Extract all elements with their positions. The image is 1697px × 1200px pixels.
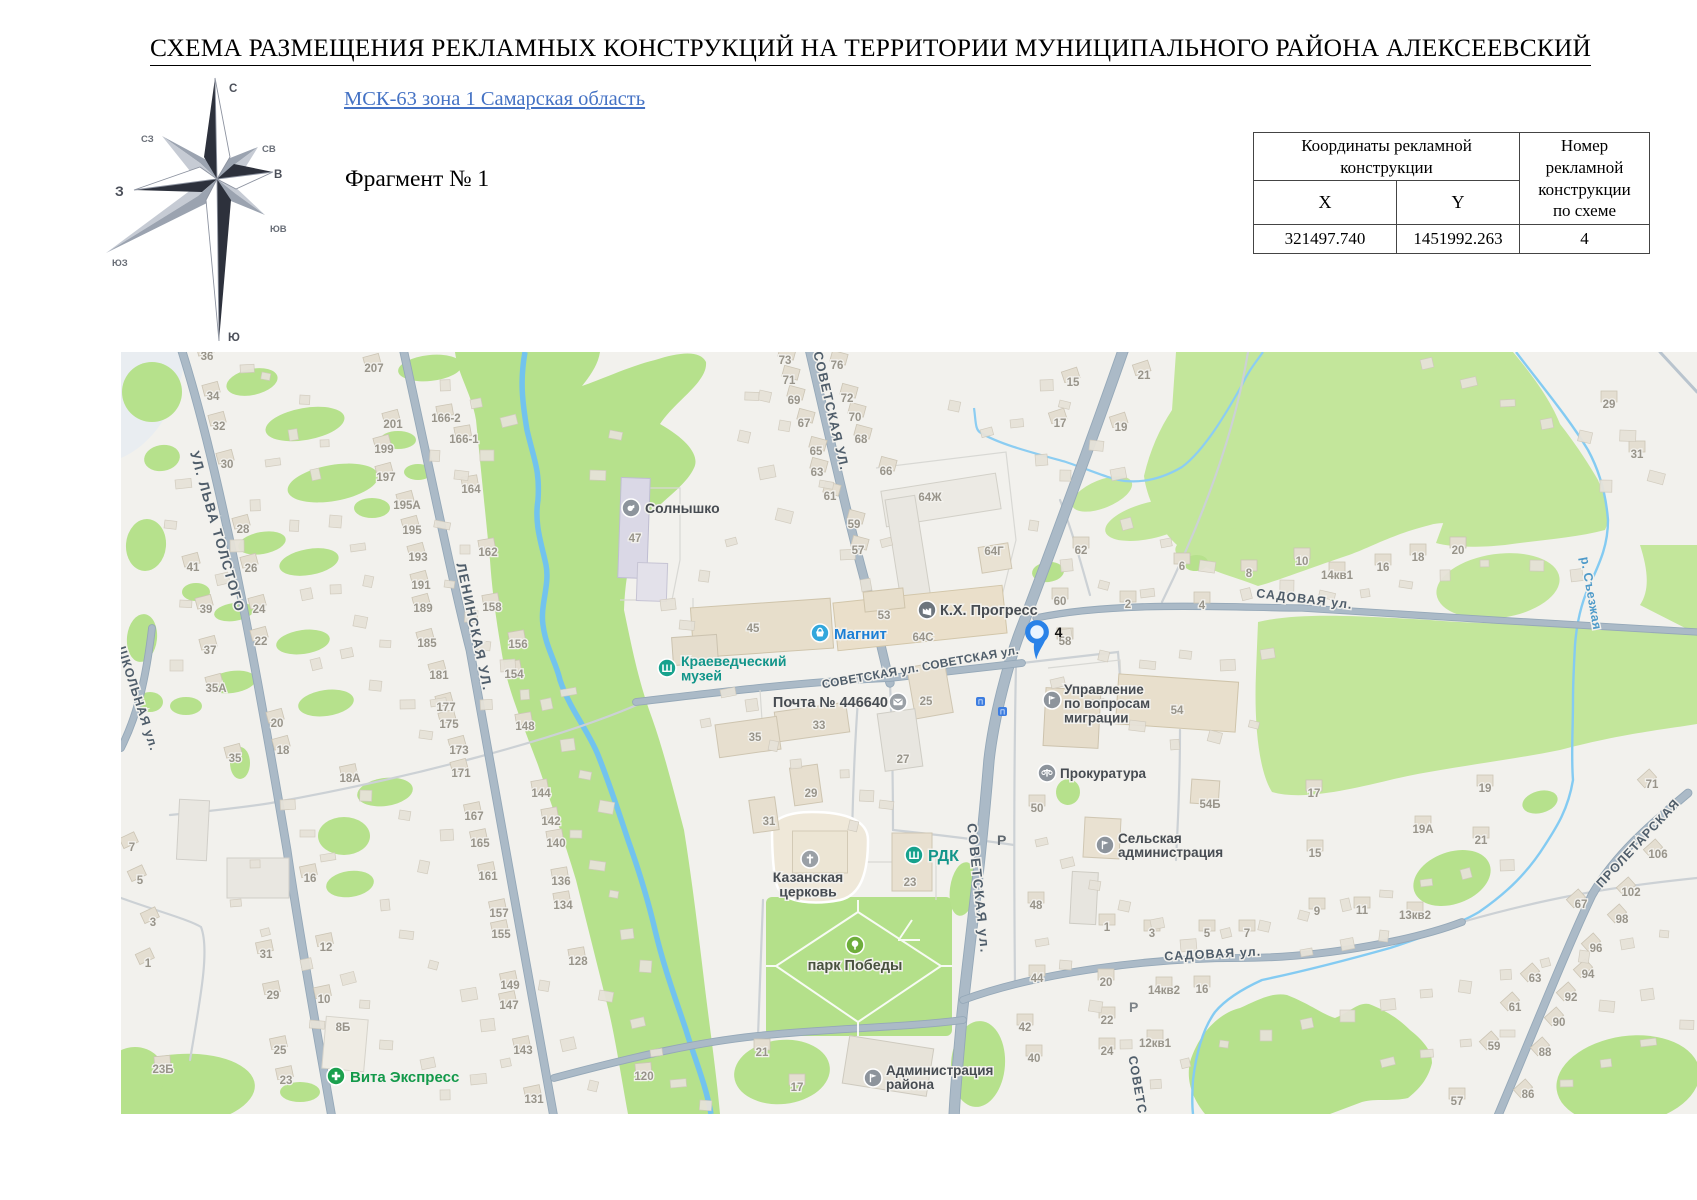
svg-text:64Ж: 64Ж	[918, 492, 942, 504]
svg-text:131: 131	[524, 1094, 544, 1106]
svg-text:57: 57	[852, 545, 865, 557]
svg-text:Администрация: Администрация	[886, 1063, 993, 1078]
svg-text:21: 21	[1475, 835, 1488, 847]
svg-text:201: 201	[383, 419, 403, 431]
svg-text:29: 29	[805, 788, 818, 800]
svg-text:миграции: миграции	[1064, 710, 1129, 725]
svg-text:157: 157	[489, 908, 508, 920]
svg-text:музей: музей	[681, 668, 722, 684]
svg-text:54Б: 54Б	[1199, 799, 1220, 811]
svg-text:86: 86	[1522, 1089, 1535, 1101]
svg-text:171: 171	[451, 768, 471, 780]
svg-text:22: 22	[255, 636, 268, 648]
svg-text:207: 207	[364, 363, 383, 375]
svg-text:18А: 18А	[339, 773, 360, 785]
svg-text:30: 30	[221, 459, 234, 471]
svg-text:98: 98	[1616, 914, 1629, 926]
svg-text:48: 48	[1030, 900, 1043, 912]
svg-text:64С: 64С	[912, 632, 933, 644]
svg-text:92: 92	[1565, 992, 1578, 1004]
svg-text:26: 26	[245, 563, 258, 575]
svg-text:162: 162	[478, 547, 497, 559]
svg-text:69: 69	[788, 395, 801, 407]
svg-text:39: 39	[200, 604, 213, 616]
svg-text:7: 7	[1244, 928, 1250, 940]
svg-text:149: 149	[500, 980, 519, 992]
svg-text:35: 35	[229, 753, 242, 765]
svg-text:17: 17	[1054, 418, 1067, 430]
svg-text:16: 16	[304, 873, 317, 885]
svg-text:29: 29	[1603, 399, 1616, 411]
svg-text:165: 165	[470, 838, 490, 850]
svg-text:94: 94	[1582, 969, 1595, 981]
svg-text:15: 15	[1067, 377, 1080, 389]
svg-text:5: 5	[1204, 928, 1211, 940]
svg-text:166-1: 166-1	[449, 434, 479, 446]
svg-text:31: 31	[763, 816, 776, 828]
svg-text:13кв2: 13кв2	[1399, 910, 1431, 922]
svg-text:17: 17	[1308, 788, 1321, 800]
svg-text:59: 59	[1488, 1041, 1501, 1053]
svg-text:61: 61	[1509, 1002, 1522, 1014]
svg-text:185: 185	[417, 638, 437, 650]
svg-text:67: 67	[798, 418, 811, 430]
svg-text:P: P	[997, 832, 1006, 848]
svg-text:147: 147	[499, 1000, 518, 1012]
svg-text:Казанская: Казанская	[773, 869, 843, 885]
svg-text:9: 9	[1314, 906, 1320, 918]
svg-text:158: 158	[482, 602, 502, 614]
svg-text:СВ: СВ	[262, 144, 276, 155]
svg-text:21: 21	[1138, 370, 1151, 382]
svg-text:140: 140	[546, 838, 565, 850]
svg-text:7: 7	[129, 842, 135, 854]
svg-text:68: 68	[855, 434, 868, 446]
svg-text:1: 1	[145, 958, 152, 970]
svg-text:14кв1: 14кв1	[1321, 570, 1354, 582]
svg-text:155: 155	[491, 929, 511, 941]
svg-text:церковь: церковь	[779, 884, 837, 900]
svg-text:20: 20	[1100, 977, 1113, 989]
svg-text:Ю: Ю	[228, 332, 240, 344]
svg-text:2: 2	[1125, 599, 1131, 611]
svg-text:47: 47	[629, 533, 642, 545]
svg-text:по вопросам: по вопросам	[1064, 696, 1150, 711]
svg-text:90: 90	[1553, 1017, 1566, 1029]
svg-text:189: 189	[413, 603, 432, 615]
svg-text:199: 199	[374, 444, 393, 456]
svg-text:45: 45	[747, 623, 760, 635]
svg-text:35: 35	[749, 732, 762, 744]
svg-text:53: 53	[878, 610, 891, 622]
svg-text:42: 42	[1019, 1022, 1032, 1034]
svg-text:36: 36	[201, 352, 214, 363]
svg-text:Краеведческий: Краеведческий	[681, 653, 787, 669]
svg-text:1: 1	[1104, 922, 1111, 934]
svg-text:24: 24	[253, 604, 266, 616]
svg-text:44: 44	[1031, 973, 1044, 985]
svg-text:59: 59	[848, 519, 861, 531]
svg-text:Управление: Управление	[1064, 682, 1144, 697]
svg-text:П: П	[1000, 710, 1005, 717]
svg-text:63: 63	[811, 467, 824, 479]
svg-text:18: 18	[277, 745, 290, 757]
svg-text:19: 19	[1115, 422, 1128, 434]
svg-text:173: 173	[449, 745, 468, 757]
svg-text:66: 66	[880, 466, 893, 478]
svg-text:73: 73	[779, 355, 792, 367]
svg-text:57: 57	[1451, 1096, 1464, 1108]
svg-text:35А: 35А	[205, 683, 226, 695]
svg-text:62: 62	[1075, 545, 1088, 557]
svg-text:25: 25	[920, 696, 933, 708]
svg-text:С: С	[229, 83, 237, 95]
svg-text:К.Х. Прогресс: К.Х. Прогресс	[940, 603, 1038, 619]
svg-text:Вита Экспресс: Вита Экспресс	[350, 1069, 459, 1086]
svg-text:8: 8	[1246, 568, 1253, 580]
svg-text:67: 67	[1575, 899, 1588, 911]
svg-text:ЮВ: ЮВ	[270, 224, 287, 235]
svg-text:148: 148	[515, 721, 535, 733]
svg-text:166-2: 166-2	[431, 413, 460, 425]
svg-text:31: 31	[1631, 449, 1644, 461]
svg-text:154: 154	[504, 669, 524, 681]
svg-text:181: 181	[429, 670, 449, 682]
svg-text:19: 19	[1479, 783, 1492, 795]
svg-text:4: 4	[1055, 624, 1063, 640]
svg-text:161: 161	[478, 871, 498, 883]
svg-text:8Б: 8Б	[336, 1022, 351, 1034]
svg-text:134: 134	[553, 900, 573, 912]
svg-text:191: 191	[411, 580, 431, 592]
svg-text:P: P	[1129, 999, 1138, 1015]
svg-text:144: 144	[531, 788, 551, 800]
svg-text:21: 21	[756, 1047, 769, 1059]
svg-text:27: 27	[897, 754, 910, 766]
svg-text:23: 23	[904, 877, 917, 889]
svg-text:96: 96	[1590, 943, 1603, 955]
svg-text:197: 197	[376, 472, 395, 484]
svg-text:17: 17	[791, 1082, 804, 1094]
svg-text:120: 120	[634, 1071, 653, 1083]
svg-text:41: 41	[187, 562, 200, 574]
svg-text:11: 11	[1356, 905, 1369, 917]
svg-text:Магнит: Магнит	[834, 626, 887, 643]
svg-text:18: 18	[1412, 552, 1425, 564]
svg-text:24: 24	[1101, 1046, 1114, 1058]
svg-text:6: 6	[1179, 561, 1185, 573]
svg-text:177: 177	[436, 702, 455, 714]
svg-text:РДК: РДК	[928, 848, 959, 865]
svg-text:20: 20	[271, 718, 284, 730]
svg-text:29: 29	[267, 990, 280, 1002]
svg-text:администрация: администрация	[1118, 845, 1223, 860]
svg-text:54: 54	[1171, 705, 1184, 717]
svg-text:106: 106	[1648, 849, 1667, 861]
svg-text:34: 34	[207, 391, 220, 403]
svg-text:В: В	[274, 169, 282, 181]
svg-text:175: 175	[439, 719, 459, 731]
svg-text:16: 16	[1196, 984, 1209, 996]
svg-text:195: 195	[402, 525, 422, 537]
svg-text:193: 193	[408, 552, 427, 564]
svg-text:40: 40	[1028, 1053, 1041, 1065]
svg-text:25: 25	[274, 1045, 287, 1057]
svg-text:136: 136	[551, 876, 570, 888]
svg-text:П: П	[978, 700, 983, 707]
svg-text:164: 164	[461, 484, 481, 496]
svg-text:61: 61	[824, 491, 837, 503]
svg-text:60: 60	[1054, 596, 1067, 608]
svg-text:10: 10	[318, 994, 331, 1006]
svg-text:16: 16	[1377, 562, 1390, 574]
svg-text:12: 12	[320, 942, 333, 954]
svg-text:12кв1: 12кв1	[1139, 1038, 1172, 1050]
svg-text:70: 70	[849, 412, 862, 424]
svg-text:32: 32	[213, 421, 226, 433]
svg-text:65: 65	[810, 446, 823, 458]
svg-text:28: 28	[237, 524, 250, 536]
svg-text:10: 10	[1296, 556, 1309, 568]
svg-text:33: 33	[813, 720, 826, 732]
svg-text:71: 71	[783, 375, 796, 387]
svg-text:З: З	[115, 183, 124, 199]
svg-text:Прокуратура: Прокуратура	[1060, 766, 1147, 781]
svg-text:37: 37	[204, 645, 217, 657]
svg-text:Ш: Ш	[908, 850, 919, 862]
svg-text:22: 22	[1101, 1015, 1114, 1027]
svg-text:167: 167	[464, 811, 483, 823]
svg-text:63: 63	[1529, 973, 1542, 985]
svg-text:района: района	[886, 1077, 934, 1092]
svg-text:156: 156	[508, 639, 527, 651]
svg-text:102: 102	[1621, 887, 1640, 899]
svg-text:19А: 19А	[1412, 824, 1433, 836]
svg-text:128: 128	[568, 956, 588, 968]
svg-text:14кв2: 14кв2	[1148, 985, 1180, 997]
svg-text:64Г: 64Г	[984, 546, 1004, 558]
svg-text:195А: 195А	[393, 500, 421, 512]
svg-text:50: 50	[1031, 803, 1044, 815]
svg-text:4: 4	[1199, 600, 1206, 612]
svg-text:СЗ: СЗ	[141, 134, 154, 145]
svg-text:143: 143	[513, 1045, 532, 1057]
svg-text:ЮЗ: ЮЗ	[112, 258, 128, 269]
svg-text:15: 15	[1309, 848, 1322, 860]
svg-text:72: 72	[841, 393, 854, 405]
svg-text:3: 3	[1149, 928, 1155, 940]
svg-text:Почта № 446640: Почта № 446640	[773, 695, 888, 711]
svg-text:3: 3	[150, 917, 156, 929]
svg-text:Солнышко: Солнышко	[645, 500, 720, 516]
svg-text:парк Победы: парк Победы	[808, 958, 903, 974]
svg-text:23: 23	[280, 1075, 293, 1087]
svg-text:142: 142	[541, 816, 560, 828]
svg-text:20: 20	[1452, 545, 1465, 557]
svg-text:23Б: 23Б	[152, 1064, 173, 1076]
svg-text:Ш: Ш	[661, 663, 672, 675]
svg-text:76: 76	[831, 360, 844, 372]
svg-text:88: 88	[1539, 1047, 1552, 1059]
svg-text:5: 5	[137, 875, 144, 887]
svg-text:71: 71	[1646, 779, 1659, 791]
svg-text:Сельская: Сельская	[1118, 831, 1182, 846]
svg-text:31: 31	[260, 949, 273, 961]
